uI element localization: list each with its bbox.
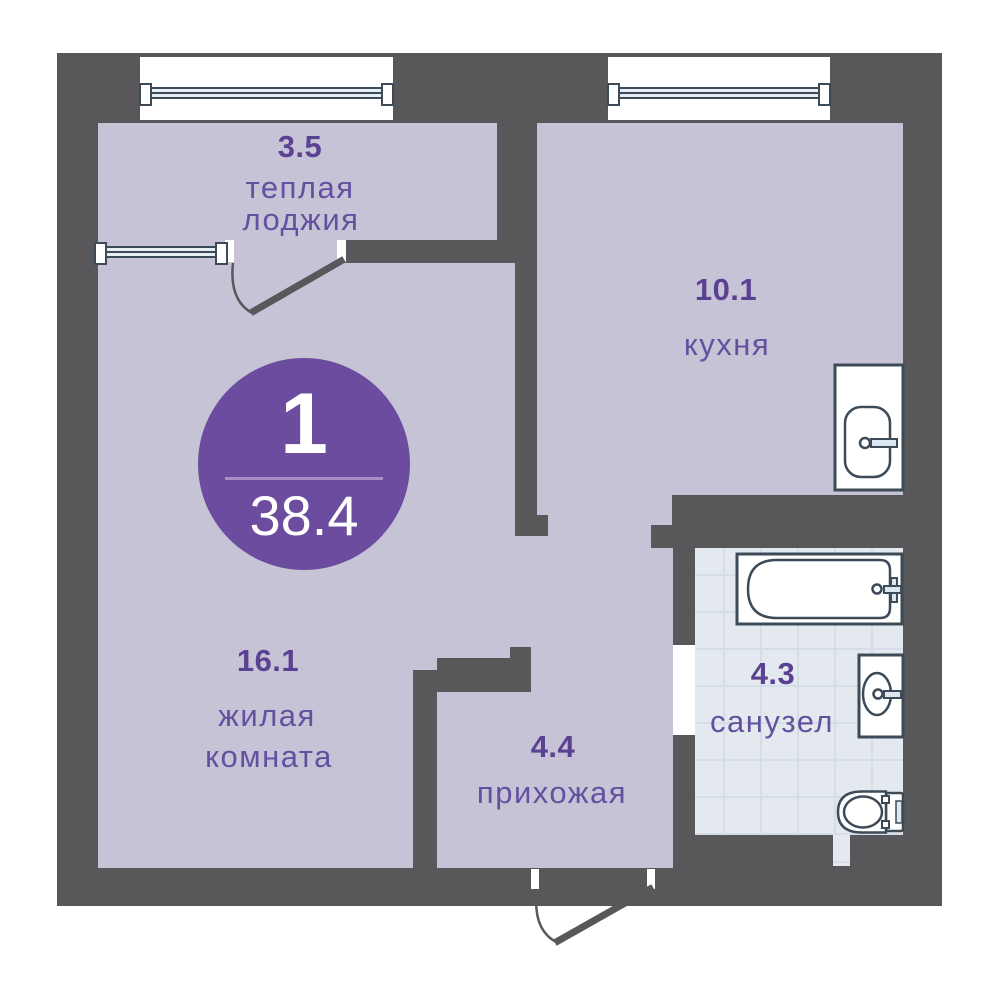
- toilet-icon: [838, 792, 903, 833]
- room-area-bathroom: 4.3: [751, 656, 796, 692]
- room-name-bathroom: санузел: [710, 704, 834, 740]
- room-name-kitchen: кухня: [684, 327, 770, 363]
- entry-door: [536, 889, 650, 942]
- badge-total-area: 38.4: [250, 488, 359, 544]
- room-area-hallway: 4.4: [531, 729, 576, 765]
- bathtub-icon: [737, 554, 902, 624]
- area-badge: 1 38.4: [198, 358, 410, 570]
- room-area-living: 16.1: [237, 643, 299, 679]
- loggia-door: [232, 261, 341, 313]
- room-name-hallway: прихожая: [477, 775, 627, 811]
- door-leaf-icon: [254, 261, 341, 311]
- room-area-kitchen: 10.1: [695, 272, 757, 308]
- room-area-loggia: 3.5: [278, 129, 323, 165]
- room-name-loggia-2: лоджия: [243, 202, 360, 238]
- door-swing-arc-icon: [232, 263, 252, 313]
- room-name-living-1: жилая: [218, 698, 316, 734]
- fixtures-layer: [0, 0, 1001, 1001]
- badge-room-count: 1: [280, 381, 328, 467]
- door-swing-arc-icon: [536, 889, 556, 942]
- badge-divider: [225, 477, 383, 480]
- kitchen-sink-icon: [835, 365, 903, 490]
- floor-plan: 3.5 теплая лоджия 10.1 кухня 16.1 жилая …: [0, 0, 1001, 1001]
- bathroom-sink-icon: [859, 655, 903, 737]
- door-leaf-icon: [558, 889, 650, 941]
- room-name-living-2: комната: [205, 739, 333, 775]
- room-name-loggia-1: теплая: [246, 170, 355, 206]
